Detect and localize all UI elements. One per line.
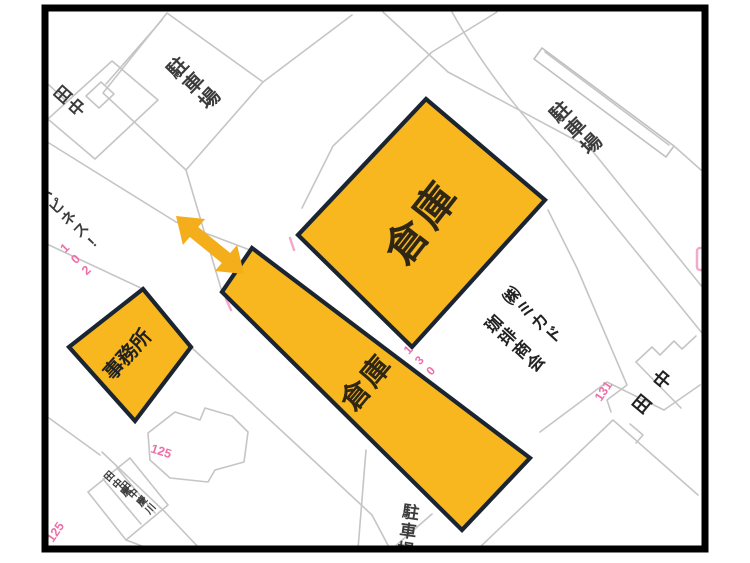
parcel-mikado: [548, 210, 627, 412]
parcel-line: [49, 418, 100, 455]
label-parking-top-left: 駐車場: [159, 52, 224, 116]
parcel-line: [106, 20, 162, 84]
highlighted-buildings: [69, 99, 545, 530]
double-arrow-icon: [176, 216, 244, 274]
pink-label-fragment: [290, 238, 294, 250]
parcel-line: [102, 452, 200, 549]
parcel-notch: [86, 82, 114, 108]
parcel-line: [674, 146, 701, 170]
parcel-line: [543, 420, 698, 495]
parcel-line: [358, 450, 366, 549]
map-canvas: 田中 駐車場 ハピネス! 102 駐車場 倉庫 倉庫 事務所 ㈱ミカド 珈琲商会…: [0, 0, 750, 563]
parcel-line: [263, 15, 352, 82]
label-tanaka-top-left: 田中: [49, 83, 90, 123]
label-number-131: 131: [592, 379, 615, 404]
cadastral-map: 田中 駐車場 ハピネス! 102 駐車場 倉庫 倉庫 事務所 ㈱ミカド 珈琲商会…: [0, 0, 750, 563]
label-number-125a: 125: [149, 442, 173, 462]
parcel-staircase: [636, 336, 696, 362]
label-tanaka-right: 田中: [628, 355, 685, 418]
